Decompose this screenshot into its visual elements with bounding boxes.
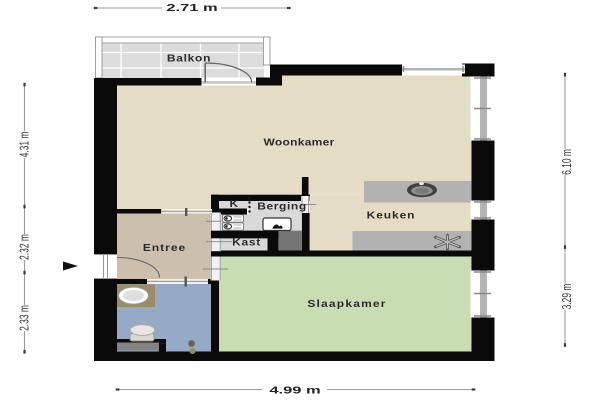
svg-text:4.31 m: 4.31 m <box>18 132 32 158</box>
svg-text:Slaapkamer: Slaapkamer <box>307 299 386 310</box>
svg-text:3.29 m: 3.29 m <box>560 284 574 310</box>
svg-text:2.71 m: 2.71 m <box>166 2 217 13</box>
svg-text:6.10 m: 6.10 m <box>560 149 574 175</box>
svg-text:4.99 m: 4.99 m <box>269 384 320 395</box>
svg-text:Keuken: Keuken <box>367 210 416 221</box>
svg-text:K: K <box>229 199 238 210</box>
svg-text:Balkon: Balkon <box>167 53 211 64</box>
svg-text:2.33 m: 2.33 m <box>18 305 32 331</box>
svg-text:Berging: Berging <box>257 201 307 212</box>
svg-text:Entree: Entree <box>143 243 186 254</box>
svg-text:Kast: Kast <box>232 237 261 248</box>
svg-text:Woonkamer: Woonkamer <box>263 138 335 149</box>
svg-text:2.32 m: 2.32 m <box>18 234 32 260</box>
